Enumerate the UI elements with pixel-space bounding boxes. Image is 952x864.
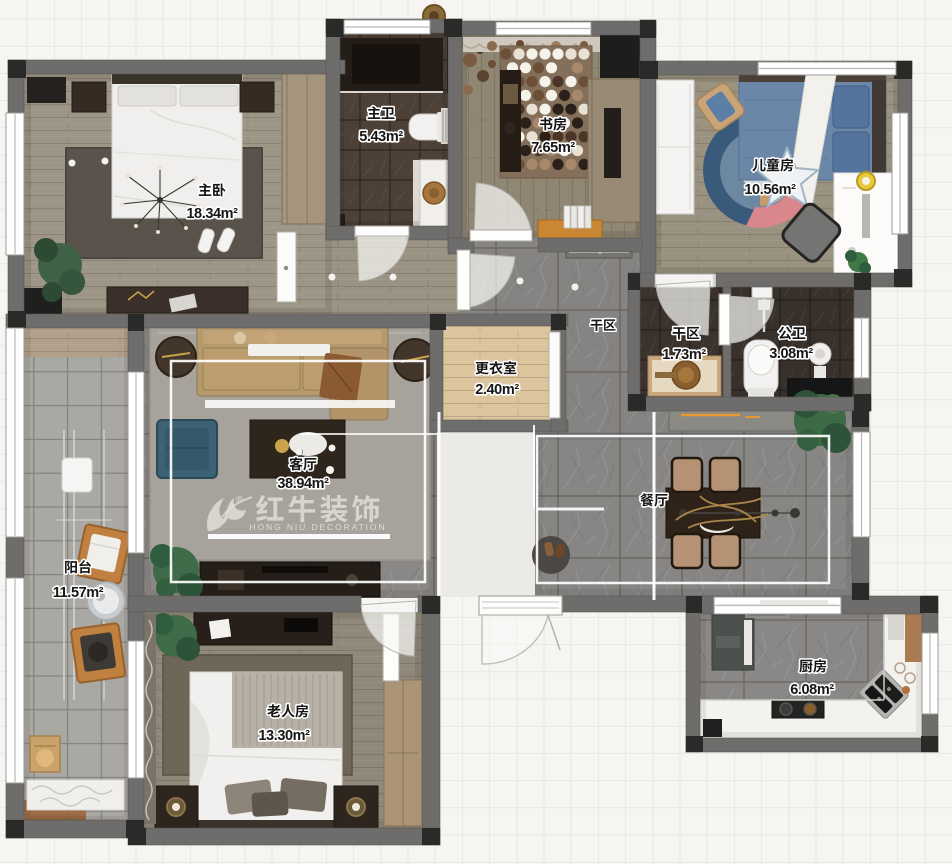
svg-text:6.08m²: 6.08m² bbox=[790, 682, 834, 698]
svg-text:7.65m²: 7.65m² bbox=[531, 140, 575, 156]
svg-text:10.56m²: 10.56m² bbox=[744, 182, 796, 198]
svg-text:38.94m²: 38.94m² bbox=[277, 476, 329, 492]
svg-text:HONG NIU DECORATION: HONG NIU DECORATION bbox=[249, 522, 386, 532]
svg-text:2.40m²: 2.40m² bbox=[475, 382, 519, 398]
svg-text:®: ® bbox=[236, 495, 244, 506]
svg-text:5.43m²: 5.43m² bbox=[359, 129, 403, 145]
svg-text:13.30m²: 13.30m² bbox=[258, 728, 310, 744]
svg-text:1.73m²: 1.73m² bbox=[662, 347, 706, 363]
svg-text:18.34m²: 18.34m² bbox=[186, 206, 238, 222]
svg-text:11.57m²: 11.57m² bbox=[53, 585, 104, 601]
svg-text:3.08m²: 3.08m² bbox=[769, 346, 813, 362]
